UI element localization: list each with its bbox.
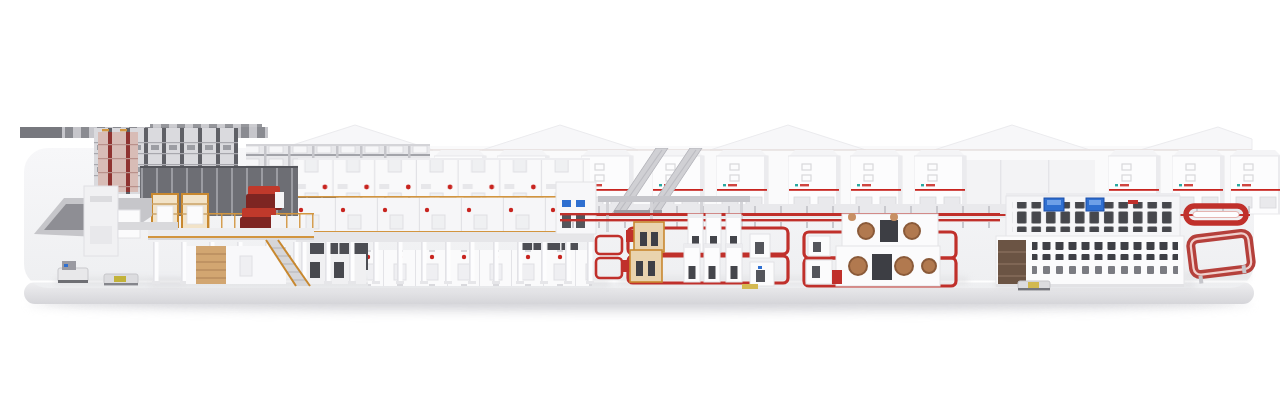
agv-pallet-sled <box>104 274 138 285</box>
pallet-rack-frame <box>182 194 208 230</box>
red-sign <box>1128 200 1138 204</box>
print-towers <box>684 214 742 282</box>
single-facer-hood <box>246 186 284 210</box>
control-screen <box>562 200 571 207</box>
reel-stand-machines <box>832 213 940 286</box>
plant-render <box>0 0 1280 405</box>
control-screen <box>576 200 585 207</box>
pallet-stack <box>196 246 226 284</box>
reel-stand-lower <box>832 246 940 286</box>
gable-3 <box>710 125 866 150</box>
hall-windows-lower <box>1032 266 1178 278</box>
outfeed-conveyor <box>118 222 178 230</box>
agv-front-of-building <box>1018 281 1050 290</box>
elevated-conveyor-pill <box>1186 206 1246 223</box>
logistics-building <box>996 193 1184 290</box>
gable-4 <box>934 125 1090 150</box>
gable-right-slope <box>1140 127 1252 150</box>
hall-windows-upper <box>1032 242 1178 260</box>
upper-railing <box>298 196 592 198</box>
floor-machine-left <box>298 254 366 284</box>
reel-stand-upper <box>842 213 938 248</box>
walkway-deck <box>296 232 594 242</box>
red-rack-section <box>98 132 138 192</box>
corrugator-dry-end <box>296 158 594 286</box>
gable-2 <box>482 125 638 150</box>
brown-storage-section <box>998 240 1026 284</box>
pallet <box>742 284 758 289</box>
